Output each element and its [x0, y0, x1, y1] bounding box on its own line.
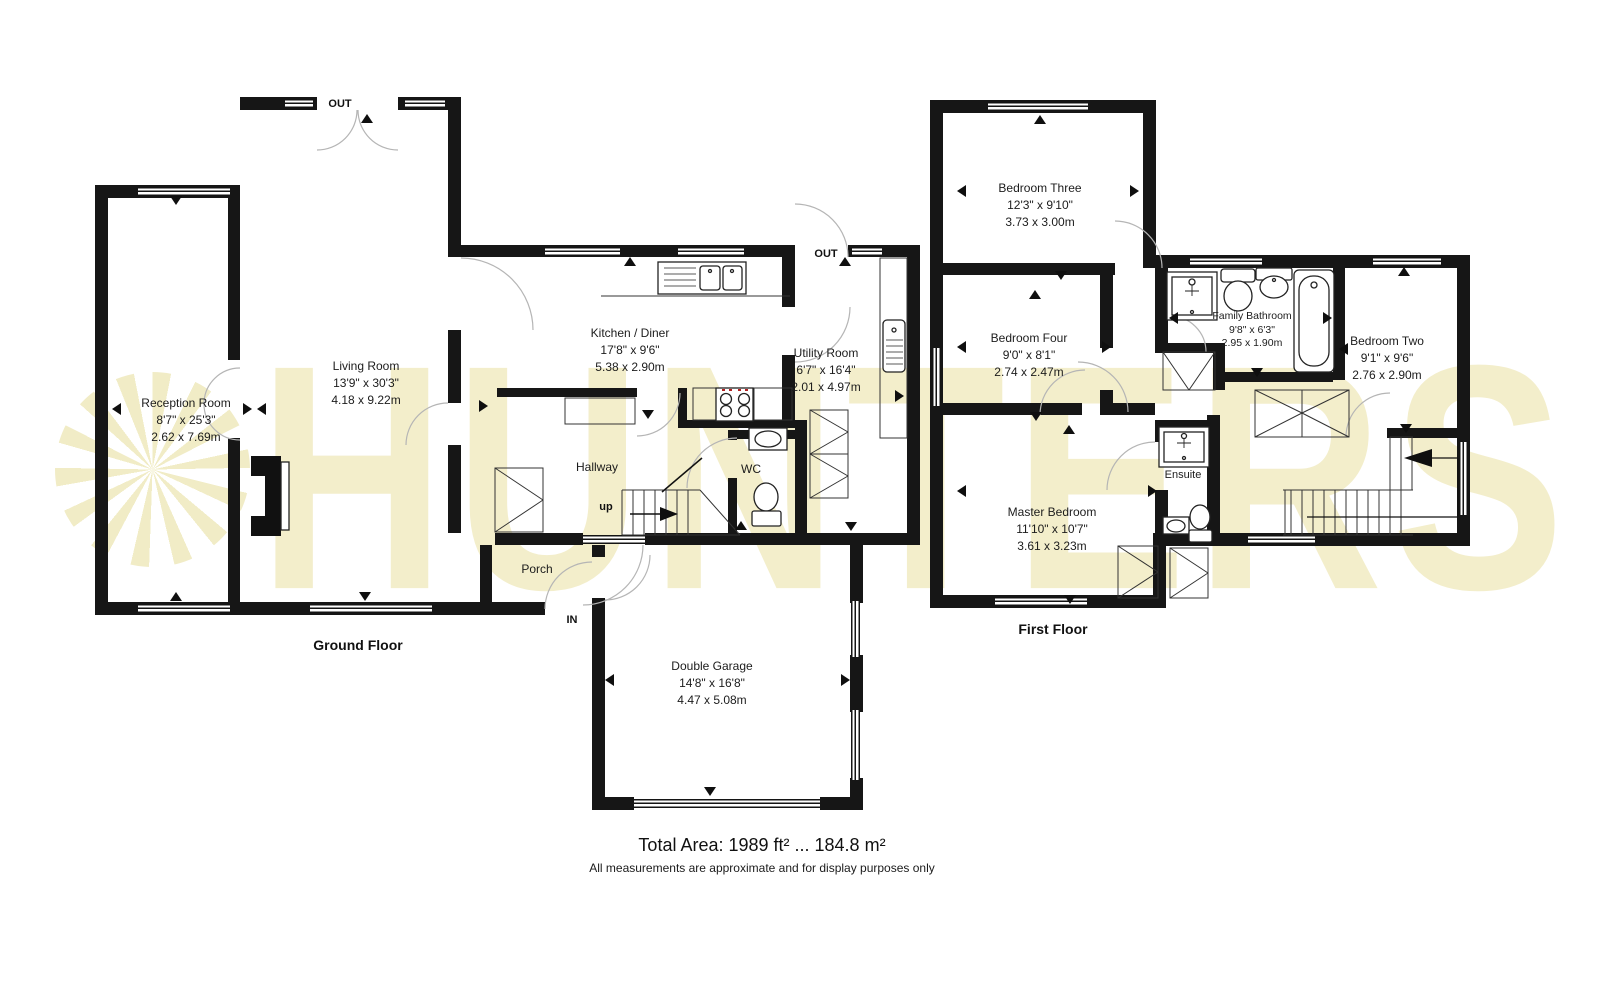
wall-segment [795, 420, 807, 533]
room-label-ensuite: Ensuite [1165, 467, 1202, 484]
wall-segment [907, 245, 920, 545]
window [851, 710, 860, 780]
wall-segment [645, 533, 920, 545]
window [852, 247, 882, 256]
wall-segment [95, 185, 108, 615]
wall-segment [737, 430, 795, 439]
window [851, 601, 860, 657]
first-floor-title: First Floor [1018, 621, 1087, 637]
out-door-label-living: OUT [328, 98, 351, 110]
wall-segment [592, 545, 605, 557]
room-label-hallway: Hallway [576, 459, 618, 476]
wall-segment [1100, 268, 1113, 348]
wall-segment [448, 330, 461, 403]
wall-segment [495, 533, 583, 545]
ground-floor-title: Ground Floor [313, 637, 402, 653]
window [1459, 442, 1468, 515]
room-label-bedroom-two: Bedroom Two 9'1" x 9'6" 2.76 x 2.90m [1350, 333, 1424, 384]
floorplan-page: HUNTERS [0, 0, 1600, 997]
room-label-kitchen-diner: Kitchen / Diner 17'8" x 9'6" 5.38 x 2.90… [591, 325, 670, 376]
room-label-wc: WC [741, 461, 761, 478]
window [678, 247, 744, 256]
window [138, 187, 230, 196]
room-label-family-bathroom: Family Bathroom 9'8" x 6'3" 2.95 x 1.90m [1212, 310, 1291, 351]
wall-segment [1153, 533, 1166, 608]
wall-segment [930, 403, 1082, 415]
wall-segment [678, 388, 687, 428]
wall-segment [1100, 390, 1113, 415]
wall-segment [850, 655, 863, 712]
stairs-up-label: up [599, 501, 612, 513]
window [634, 799, 820, 808]
wall-segment [1387, 428, 1470, 438]
out-door-label-utility: OUT [814, 248, 837, 260]
room-label-double-garage: Double Garage 14'8" x 16'8" 4.47 x 5.08m [671, 658, 752, 709]
wall-segment [782, 245, 795, 307]
room-label-living-room: Living Room 13'9" x 30'3" 4.18 x 9.22m [331, 358, 400, 409]
room-label-bedroom-three: Bedroom Three 12'3" x 9'10" 3.73 x 3.00m [998, 180, 1081, 231]
wall-segment [728, 478, 737, 533]
wall-segment [1207, 415, 1220, 546]
window [583, 535, 645, 544]
window [285, 99, 313, 108]
wall-segment [820, 797, 863, 810]
wall-segment [228, 438, 240, 615]
wall-segment [448, 97, 461, 257]
window [545, 247, 620, 256]
wall-segment [592, 598, 605, 810]
wall-segment [1207, 533, 1470, 546]
wall-segment [1155, 343, 1215, 353]
wall-segment [480, 545, 492, 615]
window [310, 604, 432, 613]
wall-segment [448, 445, 461, 533]
window [1373, 257, 1441, 266]
wall-segment [930, 263, 1115, 275]
window [138, 604, 230, 613]
wall-segment [850, 533, 863, 603]
wall-segment [497, 388, 637, 397]
window [405, 99, 445, 108]
wall-segment [1113, 403, 1155, 415]
window [1248, 535, 1315, 544]
wall-segment [1155, 490, 1168, 533]
in-door-label: IN [567, 614, 578, 626]
wall-segment [1155, 268, 1168, 353]
window [995, 597, 1087, 606]
wall-segment [1225, 372, 1333, 382]
room-label-porch: Porch [521, 561, 552, 578]
room-label-reception-room: Reception Room 8'7" x 25'3" 2.62 x 7.69m [141, 395, 230, 446]
wall-segment [728, 430, 737, 440]
wall-segment [687, 420, 795, 428]
room-label-utility-room: Utility Room 6'7" x 16'4" 2.01 x 4.97m [791, 345, 860, 396]
wall-segment [592, 797, 634, 810]
room-label-master-bedroom: Master Bedroom 11'10" x 10'7" 3.61 x 3.2… [1008, 504, 1097, 555]
wall-segment [228, 185, 240, 360]
window [1190, 257, 1262, 266]
disclaimer-text: All measurements are approximate and for… [589, 861, 935, 875]
window [932, 348, 941, 406]
wall-segment [1333, 268, 1345, 380]
room-label-bedroom-four: Bedroom Four 9'0" x 8'1" 2.74 x 2.47m [991, 330, 1068, 381]
total-area-text: Total Area: 1989 ft² ... 184.8 m² [638, 835, 885, 856]
window [988, 102, 1088, 111]
wall-segment [1143, 100, 1156, 268]
